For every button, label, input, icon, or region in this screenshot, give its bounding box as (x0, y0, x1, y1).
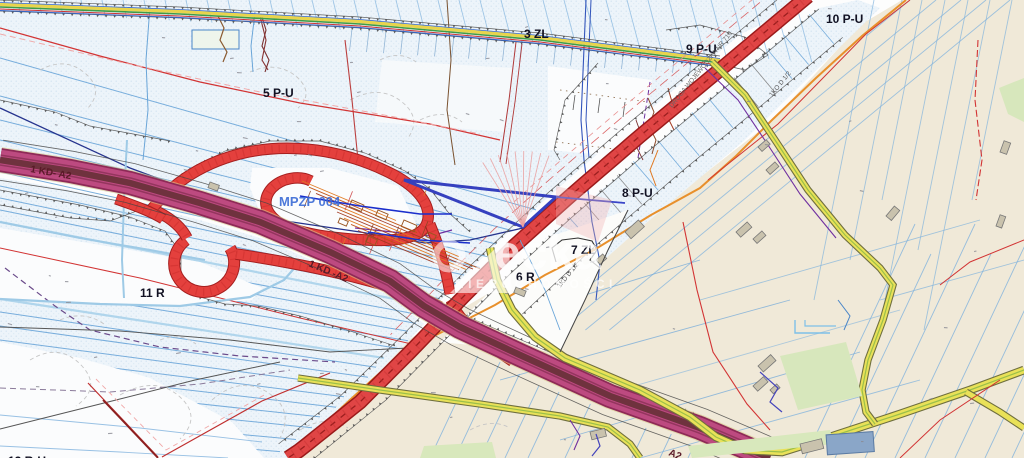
svg-text:5 P-U: 5 P-U (263, 86, 294, 100)
svg-text:12 R-U: 12 R-U (8, 454, 46, 458)
svg-text:3 ZL: 3 ZL (524, 27, 549, 41)
svg-text:MPZP 004: MPZP 004 (279, 194, 341, 209)
svg-text:11 R: 11 R (140, 286, 165, 300)
svg-text:ecka: ecka (494, 227, 601, 280)
svg-text:8 P-U: 8 P-U (622, 186, 653, 200)
svg-text:NIERUCHOMOŚCI: NIERUCHOMOŚCI (455, 276, 617, 291)
svg-text:10 P-U: 10 P-U (826, 12, 863, 26)
